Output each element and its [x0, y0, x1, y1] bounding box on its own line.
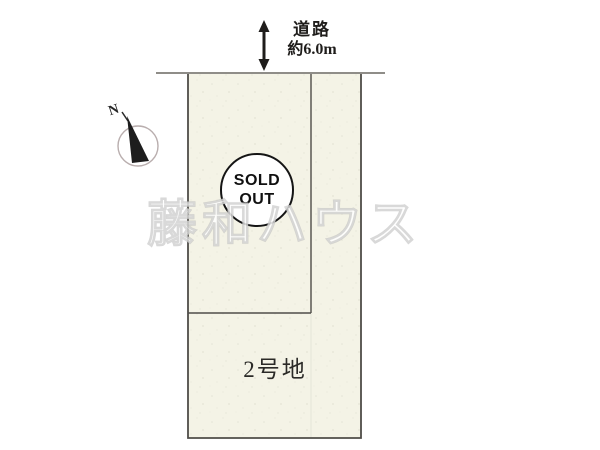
road-annotation: 道路 約6.0m — [272, 20, 352, 59]
north-compass-icon — [118, 112, 158, 166]
sold-out-badge-line1: SOLD — [234, 171, 280, 190]
plot-2-label: 2号地 — [225, 350, 325, 384]
road-dimension: 約6.0m — [272, 40, 352, 59]
plot-map: 道路 約6.0m N SOLD OUT 2号地 藤和ハウス — [0, 0, 600, 450]
road-width-arrow-icon — [259, 20, 270, 71]
sold-out-badge: SOLD OUT — [220, 153, 294, 227]
road-label: 道路 — [272, 20, 352, 40]
sold-out-badge-line2: OUT — [239, 190, 274, 209]
